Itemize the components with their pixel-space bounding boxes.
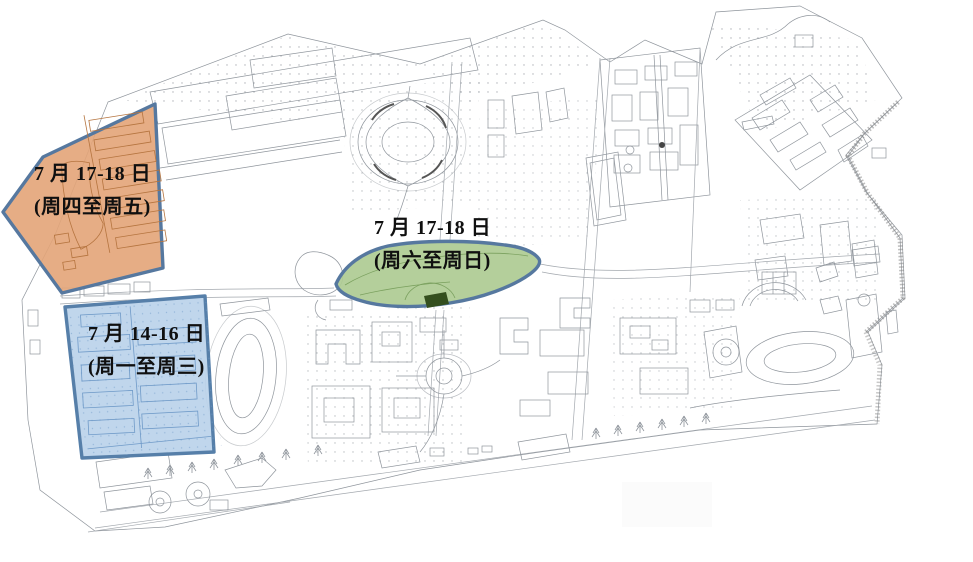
faint-watermark (622, 482, 712, 527)
label-region-central-park: 7 月 17-18 日 (周六至周日) (374, 212, 491, 278)
buildings-southwest (96, 452, 276, 513)
label-northwest-weekdays: (周四至周五) (34, 191, 151, 224)
campus-block-north-right (600, 48, 710, 207)
east-stadium-track (744, 326, 857, 389)
label-southwest-dates: 7 月 14-16 日 (88, 318, 205, 351)
campus-map-svg (0, 0, 973, 562)
campus-map-screenshot: 7 月 17-18 日 (周四至周五) 7 月 17-18 日 (周六至周日) … (0, 0, 973, 562)
buildings-south-mid (500, 298, 590, 416)
label-central-park-dates: 7 月 17-18 日 (374, 212, 491, 245)
label-northwest-dates: 7 月 17-18 日 (34, 158, 151, 191)
label-region-northwest: 7 月 17-18 日 (周四至周五) (34, 158, 151, 224)
label-region-southwest: 7 月 14-16 日 (周一至周三) (88, 318, 205, 384)
label-central-park-weekdays: (周六至周日) (374, 245, 491, 278)
label-southwest-weekdays: (周一至周三) (88, 351, 205, 384)
